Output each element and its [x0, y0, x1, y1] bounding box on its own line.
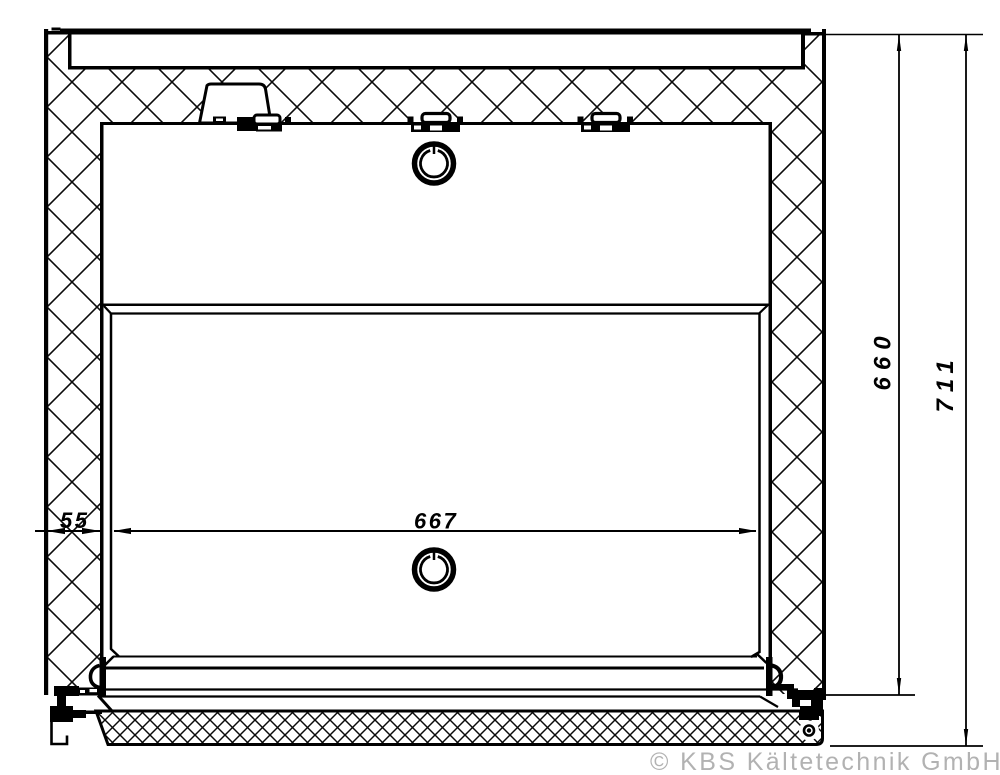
svg-text:© KBS Kältetechnik GmbH: © KBS Kältetechnik GmbH: [650, 748, 1000, 775]
svg-text:711: 711: [932, 353, 959, 412]
svg-text:667: 667: [414, 509, 458, 534]
svg-text:55: 55: [60, 508, 89, 533]
svg-text:660: 660: [870, 329, 897, 390]
